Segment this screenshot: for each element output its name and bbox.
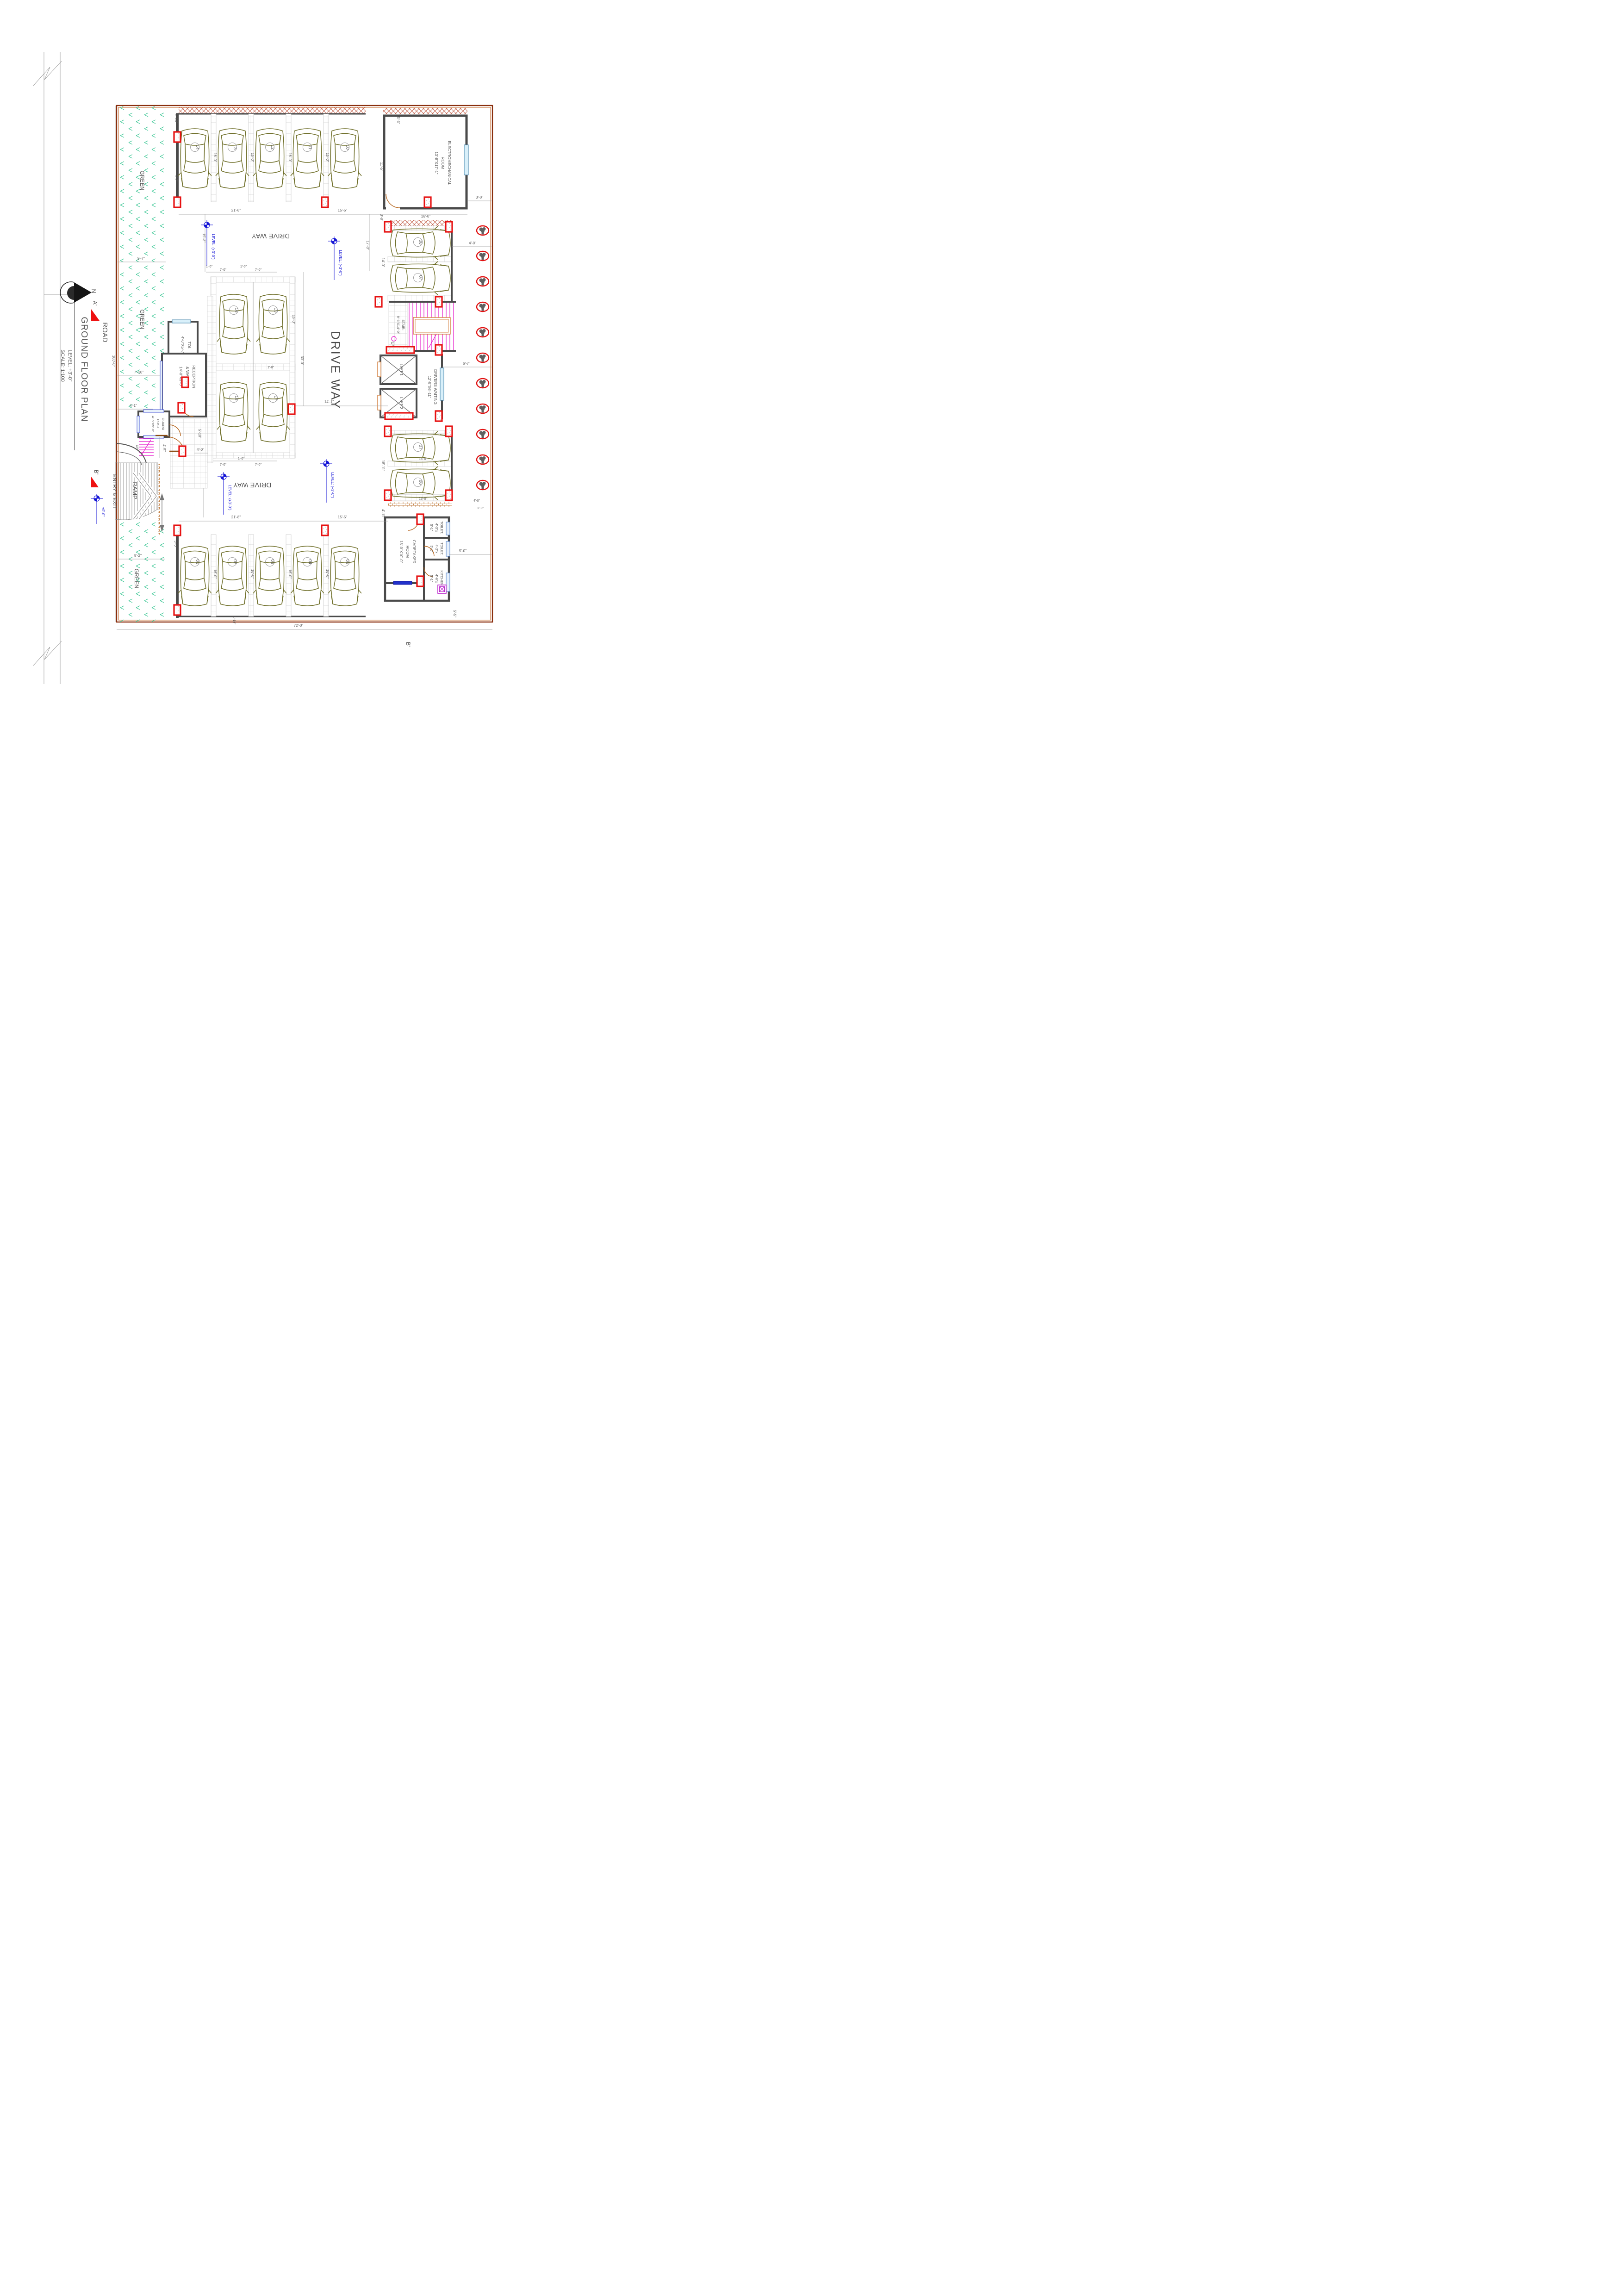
column-marker (385, 426, 391, 436)
column-marker (436, 345, 442, 355)
dim: 1'-7" (174, 175, 178, 182)
car-bottom-01 (178, 546, 212, 606)
car-top-11 (291, 129, 324, 188)
room-size-drivers-waiting: 12'-5"X6'-11" (427, 376, 432, 398)
stall-number: 04 (307, 560, 312, 565)
section-marker-b-left: B' (93, 470, 100, 474)
window-icon (446, 522, 450, 535)
column-marker-long (386, 347, 414, 353)
car-top-10 (328, 129, 361, 188)
window-icon (137, 416, 140, 433)
dim-stall: 16'-0" (325, 153, 330, 162)
plant-icon (477, 226, 489, 235)
dim-green-d: 8'-2" (134, 554, 142, 558)
room-label-lift1: LIFT:1 (398, 364, 404, 376)
ramp-direction-arrow (160, 494, 164, 531)
car-bottom-02 (216, 546, 249, 606)
room-label-caretaker: CARETAKER (412, 540, 417, 563)
dim-green-b: 7'-10" (134, 370, 144, 374)
driveway-label-bottom: DRIVE WAY (233, 481, 272, 489)
parking-row-bottom: 21'-8" 15'-5" 01 02 03 04 05 16'-0" 16'-… (174, 515, 388, 624)
dim: 4'-0" (469, 241, 476, 245)
dim: 3'-0" (174, 541, 178, 548)
room-size-caretaker: 13'-0"X10'-0" (399, 541, 404, 563)
dim-stall: 16'-0" (250, 569, 255, 579)
dim: 16'-0" (421, 214, 431, 218)
dim-green-a: 9'-7" (137, 256, 145, 261)
room-label-stair: STAIR: (401, 319, 405, 330)
car-top-12 (253, 129, 286, 188)
room-size-electromechanical: 13'-8"X17'-1" (434, 152, 439, 174)
stall-number: 18 (234, 396, 239, 401)
dim-stall: 16'-0" (213, 569, 217, 579)
room-size-kitchen-b: 5'-1" (429, 575, 434, 582)
entry-exit-label: ENTRY & EXIT (112, 474, 117, 509)
boundary-hatch (179, 107, 366, 113)
dim: 14'-0" (381, 258, 385, 268)
plant-icon (477, 379, 489, 388)
column-marker (417, 514, 423, 524)
stall-number: 15 (273, 308, 278, 313)
column-marker (446, 426, 452, 436)
stall-number: 07 (418, 275, 423, 280)
car-mid-15 (256, 294, 290, 354)
room-label-toi: TOI. (187, 342, 192, 349)
room-size-toi: 4'-6"X5'-7" (180, 336, 185, 355)
dim-site-height: 100'-0" (112, 355, 116, 367)
wall (176, 114, 179, 204)
room-size-toilet1: 4'-3"x (435, 523, 439, 532)
window-icon (143, 410, 164, 412)
stall-number: 13 (232, 145, 237, 150)
dim: 1'-0" (238, 457, 244, 460)
stall-number: 10 (345, 145, 350, 150)
room-label-guard: GUARD (161, 417, 165, 430)
column-marker (375, 297, 382, 307)
dim: 7'-0" (255, 268, 261, 272)
green-areas: GREEN GREEN GREEN 9'-7" 7'-10" 4'-1" 8'-… (118, 106, 166, 622)
car-mid-17 (256, 382, 290, 442)
column-marker (182, 377, 188, 387)
plant-icon (477, 251, 489, 261)
stall-number: 05 (345, 560, 350, 565)
column-marker (174, 605, 180, 615)
dim: 7'-0" (220, 268, 226, 272)
room-label-drivers-waiting: DRIVERS WAITING (433, 369, 438, 404)
window-icon (160, 361, 162, 412)
lift-door-icon (378, 362, 381, 377)
dim: 1'-0" (240, 265, 247, 268)
stall-number: 06 (418, 240, 423, 245)
dim-row: 15'-5" (338, 208, 348, 212)
section-marker-a-icon (91, 309, 100, 321)
dim: 5'-5" (453, 610, 457, 617)
dim-stall: 16'-0" (288, 569, 292, 579)
driveway-label-main: DRIVE WAY (329, 331, 342, 410)
window-icon (393, 581, 412, 585)
dim-row: 15'-5" (338, 515, 348, 519)
room-size-toilet2-b: 5'-1" (429, 546, 434, 553)
green-label-top: GREEN (139, 171, 145, 191)
column-marker (446, 222, 452, 232)
window-icon (172, 320, 191, 323)
dim: 4'-5" (162, 444, 166, 452)
room-stair: STAIR: 9'-5"X14'-0" UP (389, 302, 456, 351)
dim: 1'-10" (232, 616, 236, 624)
room-label-reception: RECEPTION (192, 365, 196, 388)
dim: 16'-0" (419, 458, 427, 461)
dim: 7'-0" (255, 463, 261, 467)
room-label-caretaker-2: ROOM (405, 546, 410, 558)
level-marker-top: LEVEL: (+3'-0") (211, 234, 215, 260)
column-marker (174, 132, 180, 142)
plan-title: GROUND FLOOR PLAN (79, 317, 89, 422)
room-label-toilet1: TOILET. (440, 521, 444, 534)
stall-number: 06 (418, 480, 423, 485)
lift-block: LIFT:1 LIFT:2 DRIVERS WAITING 12'-5"X6'-… (378, 354, 492, 419)
dim: 18'-11" (381, 460, 385, 471)
plant-icon (477, 353, 489, 362)
dim-row: 21'-8" (231, 515, 241, 519)
room-label-kitchen: KITCHEN. (440, 570, 444, 586)
plan-scale: SCALE: 1:100 (60, 349, 65, 382)
column-marker (322, 525, 328, 535)
plant-icon (477, 455, 489, 464)
dim: 1'-0" (477, 507, 484, 510)
column-marker (436, 411, 442, 421)
car-mid-16 (217, 294, 250, 354)
stall-number: 11 (307, 145, 312, 149)
dim: 6'-7" (463, 361, 470, 366)
level-marker-bottom-left: LEVEL: (+3'-0") (228, 485, 232, 510)
dim-stall: 16'-0" (250, 153, 255, 162)
green-label-middle: GREEN (139, 310, 145, 330)
car-mid-18 (217, 382, 250, 442)
boundary-plants (477, 226, 489, 490)
room-label-lift2: LIFT:2 (398, 397, 404, 409)
room-label-guard-2: POST (156, 419, 160, 429)
dim: 3'-0" (476, 195, 483, 199)
column-marker (288, 404, 295, 414)
north-arrow-icon (44, 282, 92, 303)
plant-icon (477, 429, 489, 439)
dim-site-width: 72'-0" (294, 623, 304, 628)
stall-number: 17 (273, 396, 278, 401)
room-label-electromechanical-2: ROOM (441, 157, 445, 169)
section-marker-a-label: A' (92, 301, 98, 305)
column-marker (385, 222, 391, 232)
plant-icon (477, 404, 489, 413)
ramp-label: RAMP (131, 482, 138, 499)
dim: 16'-0" (292, 315, 296, 324)
window-icon (464, 145, 468, 175)
stall-number: 16 (234, 308, 239, 313)
parking-right-lower: 07 06 18'-11" 16'-0" 15'-0" 4'-11" 4'-0"… (381, 430, 484, 518)
room-label-toilet2: TOILET. (440, 542, 444, 555)
dim: 1'-10" (174, 114, 178, 124)
north-label: N (90, 289, 97, 293)
room-label-electromechanical: ELECTROMECHANICAL (447, 141, 452, 185)
green-label-bottom: GREEN (133, 569, 140, 589)
stall-number: 02 (232, 560, 237, 565)
entry-curved-wall (117, 443, 146, 463)
wall-hatch (388, 220, 452, 226)
road-break-icon (33, 61, 62, 86)
green-area-bottom (118, 522, 165, 622)
window-icon (446, 573, 450, 591)
level-marker-right: LEVEL: (+3'-0") (338, 250, 342, 276)
dim-green-c: 4'-1" (130, 404, 137, 408)
dim: 4'-0" (197, 448, 204, 452)
floor-plan-sheet: ROAD GROUND FLOOR PLAN LEVEL: +3'-0" SCA… (0, 0, 509, 720)
column-marker (424, 197, 431, 207)
dim-stall: 16'-0" (325, 569, 330, 579)
entry-block: GUARD POST 4'-6"X5'-0" UP 4'-5" 5'-10" 4… (91, 410, 208, 535)
dim: 15'-3" (202, 233, 206, 243)
floor-plan-svg: ROAD GROUND FLOOR PLAN LEVEL: +3'-0" SCA… (0, 0, 509, 720)
room-size-guard: 4'-6"X5'-0" (151, 416, 155, 432)
room-size-toilet2: 4'-2"x (435, 545, 439, 554)
dim: 4'-0" (473, 499, 480, 503)
column-marker (179, 446, 186, 456)
column-marker (174, 525, 180, 535)
room-size-toilet1-b: 5'-1" (429, 524, 434, 531)
dim: 1'-0" (206, 265, 212, 268)
dim: 5'-10" (198, 429, 202, 439)
dim: 7'-0" (220, 463, 226, 467)
dim: 3'-8" (380, 214, 384, 221)
lift-door-icon (378, 395, 381, 410)
column-marker (322, 197, 328, 207)
dim-stall: 16'-0" (288, 153, 292, 162)
stall-number: 07 (418, 445, 423, 450)
column-marker (436, 297, 442, 307)
plant-icon (477, 302, 489, 311)
level-marker-entry: ±0'-0" (101, 507, 105, 516)
plan-level: LEVEL: +3'-0" (67, 350, 73, 382)
dim-row: 21'-8" (231, 208, 241, 212)
green-area-middle (118, 263, 166, 411)
dim: 33'-0" (300, 356, 304, 366)
section-marker-b-icon (91, 477, 99, 487)
column-marker-long (385, 413, 413, 419)
wall-hatch (158, 464, 160, 535)
road-break-icon (33, 641, 62, 666)
stall-number: 12 (270, 145, 275, 150)
column-marker (417, 576, 423, 586)
dim-stall: 16'-0" (213, 153, 217, 162)
stall-number: 01 (195, 560, 200, 565)
plant-icon (477, 277, 489, 286)
car-top-14 (178, 129, 212, 188)
room-electromechanical: ELECTROMECHANICAL ROOM 13'-8"X17'-1" 5'-… (380, 116, 492, 221)
plant-icon (477, 480, 489, 490)
section-marker-b-bottom: B' (405, 642, 411, 647)
parking-middle-cluster: 16 15 18 17 16'-0" 16'-0" 1'-0" 7'-0" 1'… (206, 265, 388, 467)
car-top-13 (216, 129, 249, 188)
dim: 11'-5" (380, 162, 384, 171)
wall-hatch (388, 502, 452, 507)
car-bottom-05 (328, 546, 361, 606)
room-size-kitchen: 4'-6"x (435, 574, 439, 583)
column-marker (178, 403, 185, 413)
road-label: ROAD (101, 322, 109, 342)
car-bottom-04 (291, 546, 324, 606)
title-block: GROUND FLOOR PLAN LEVEL: +3'-0" SCALE: 1… (44, 282, 100, 450)
plant-icon (477, 328, 489, 337)
window-icon (446, 541, 450, 556)
caretaker-block: CARETAKER ROOM 13'-0"X10'-0" TOILET. 4'-… (385, 517, 492, 617)
driveway-label-top: DRIVE WAY (252, 232, 290, 240)
boundary-hatch (383, 108, 467, 114)
dim: 1'-0" (268, 366, 274, 369)
column-marker (446, 490, 452, 500)
column-marker (174, 197, 180, 207)
stall-number: 03 (270, 560, 275, 565)
stall-number: 14 (195, 145, 200, 150)
dim: 5'-0" (459, 549, 467, 553)
dim: 5'-5" (396, 117, 400, 124)
car-bottom-03 (253, 546, 286, 606)
level-marker-bottom-right: LEVEL: (+3'-0") (330, 472, 335, 498)
window-icon (440, 368, 444, 400)
dim: 15'-0" (419, 498, 427, 501)
room-size-stair: 9'-5"X14'-0" (396, 316, 400, 334)
column-marker (385, 490, 391, 500)
